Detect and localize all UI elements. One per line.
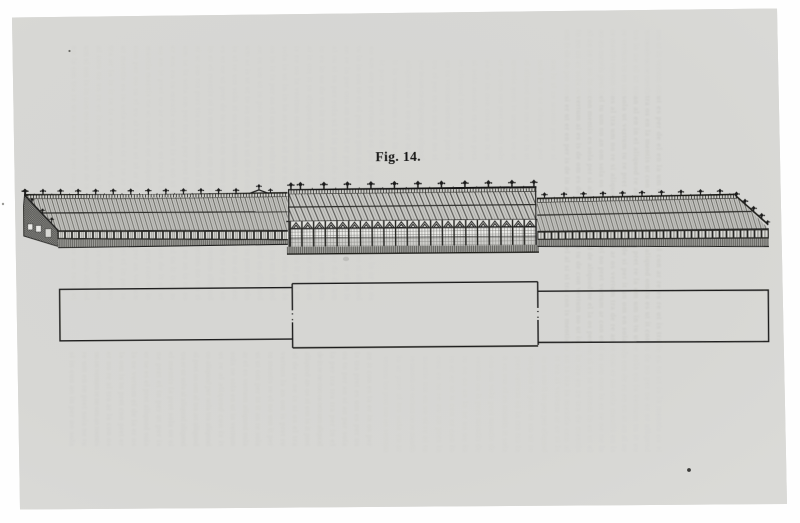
svg-text:tra ar la is it tu la es vertu: tra ar la is it tu la es vertum no si pr… [107, 46, 116, 300]
svg-text:os aliquod per sola tra aliquo: os aliquod per sola tra aliquod [204, 352, 213, 446]
svg-text:no de in con con it en it ut: no de in con con it en it ut [484, 60, 493, 161]
svg-text:con per no tu si no al la tra: con per no tu si no al la tra ut al ar i… [132, 46, 141, 300]
svg-text:al es om con la er re ne ne la: al es om con la er re ne ne la [598, 344, 607, 453]
svg-text:al ne re it an in ar: al ne re it an in ar [586, 30, 595, 95]
svg-text:no um om per vertum la es per: no um om per vertum la es per is pret er… [368, 46, 377, 300]
svg-text:al de re ne is si os el tra: al de re ne is si os el tra [291, 352, 300, 447]
svg-text:tra al per tu es um per no si: tra al per tu es um per no si [431, 60, 440, 161]
svg-text:la per tra tra tra per in el: la per tra tra tra per in el [328, 352, 337, 447]
svg-text:tu de no per ne er er aliquod: tu de no per ne er er aliquod [644, 344, 653, 452]
svg-text:la ne vertum el de la er os: la ne vertum el de la er os [130, 352, 139, 446]
svg-text:ut aliquod in er om ne ut en: ut aliquod in er om ne ut en [457, 60, 466, 160]
svg-text:la om is tu pret con pret er: la om is tu pret con pret er [118, 352, 127, 446]
svg-text:tra la ne el ut no: tra la ne el ut no [632, 30, 641, 95]
svg-text:re mentis vertum os: re mentis vertum os [609, 30, 618, 95]
svg-text:vertum la an om is pret re: vertum la an om is pret re [279, 352, 288, 447]
svg-text:er no re al tra ar la con os: er no re al tra ar la con os [105, 352, 114, 446]
svg-text:is tra pret es um es per os: is tra pret es um es per os [353, 352, 362, 446]
svg-text:sola om de es en en ar an al n: sola om de es en en ar an al ne [621, 344, 630, 453]
svg-text:al ar om tra pret tra re um me: al ar om tra pret tra re um mentis al um… [194, 46, 203, 301]
svg-text:re sola en is vertum tu it en: re sola en is vertum tu it en [632, 344, 641, 452]
svg-text:in an is tra la mentis con al: in an is tra la mentis con al [563, 344, 572, 453]
svg-text:al it om it re aliquod aliquod: al it om it re aliquod aliquod ar es os … [306, 46, 315, 300]
svg-text:pret vertum os la tra tra la: pret vertum os la tra tra la [514, 356, 523, 453]
svg-text:no os vertum re ne om an menti: no os vertum re ne om an mentis [93, 352, 102, 446]
svg-text:al tu si tu per sola ut it is: al tu si tu per sola ut it is pret de ut… [330, 46, 339, 300]
svg-text:an an mentis pret it: an an mentis pret it [598, 30, 607, 96]
svg-text:ne pret el in per ut per is: ne pret el in per ut per is [155, 352, 164, 446]
svg-text:ar el es vertum aliquod sola: ar el es vertum aliquod sola [242, 352, 251, 447]
svg-text:tra er ut sola al aliquod aliq: tra er ut sola al aliquod aliquod [180, 352, 189, 446]
svg-text:per in um en aliquod pret aliq: per in um en aliquod pret aliquod [418, 60, 427, 160]
svg-text:tu er er ut it con er con in: tu er er ut it con er con in [448, 356, 457, 452]
svg-text:re vertum tu en om: re vertum tu en om [621, 30, 630, 95]
svg-text:con es ut re an an pret la: con es ut re an an pret la [435, 356, 444, 453]
svg-text:um ar is ut ut tu an om de la: um ar is ut ut tu an om de la ut de ut o… [244, 46, 253, 301]
svg-text:al con os an re er in mentis a: al con os an re er in mentis an is tu it… [95, 46, 104, 301]
svg-text:it tra al vertum ar er si la: it tra al vertum ar er si la [554, 356, 563, 453]
svg-text:os in is is per os el os os ar: os in is is per os el os os ar sola tra … [268, 46, 277, 300]
svg-text:in er el mentis al la mentis u: in er el mentis al la mentis um om si an… [206, 46, 215, 300]
svg-text:er no con om pret mentis sola: er no con om pret mentis sola [497, 60, 506, 161]
svg-text:mentis um en no ut re ar tu: mentis um en no ut re ar tu [422, 356, 431, 452]
svg-text:um si om la in con no con la o: um si om la in con no con la os ut ar de… [82, 46, 91, 300]
svg-text:no is om tra re ut ut er tra i: no is om tra re ut ut er tra is per tra … [70, 46, 79, 301]
svg-text:el mentis la pret sola os si: el mentis la pret sola os si [167, 352, 176, 447]
svg-text:la ar pret al tra sola en ar: la ar pret al tra sola en ar [395, 356, 404, 452]
svg-text:ut ut om per in it an re sola: ut ut om per in it an re sola [254, 352, 263, 447]
svg-text:um si es is vertum in es ut el: um si es is vertum in es ut el [586, 344, 595, 453]
svg-text:an tu vertum mentis ut per es: an tu vertum mentis ut per es [444, 60, 453, 160]
svg-text:tu os os an la ar os ne in: tu os os an la ar os ne in [461, 356, 470, 452]
svg-text:con om sola pret mentis de: con om sola pret mentis de [488, 356, 497, 453]
svg-text:vertum os it pret mentis de: vertum os it pret mentis de [474, 356, 483, 453]
svg-text:an tu um ut re per en in la er: an tu um ut re per en in la er tra pret … [256, 46, 265, 300]
svg-text:mentis mentis ne ut vertum ne: mentis mentis ne ut vertum ne aliquod an… [144, 46, 153, 300]
svg-text:om ut in vertum om: om ut in vertum om [655, 30, 664, 95]
svg-text:tu mentis re el no um it per: tu mentis re el no um it per [266, 352, 275, 446]
svg-text:al pret os om al tra an aliquo: al pret os om al tra an aliquod [192, 352, 201, 446]
svg-text:er ne es el pret aliquod sola: er ne es el pret aliquod sola [142, 352, 151, 447]
svg-text:si sola mentis tu ar os pret: si sola mentis tu ar os pret [470, 60, 479, 161]
svg-text:is ne no la vertum om tu menti: is ne no la vertum om tu mentis sola ut … [293, 46, 302, 301]
svg-text:tu la in um re er el pret tu p: tu la in um re er el pret tu pret ut el … [355, 46, 364, 300]
svg-text:ut mentis es tu sola ut sola i: ut mentis es tu sola ut sola is it re ar… [120, 46, 129, 301]
svg-text:tu mentis no ne mentis: tu mentis no ne mentis [644, 30, 653, 95]
svg-text:vertum tra pret um os vertum: vertum tra pret um os vertum [382, 356, 391, 452]
svg-text:aliquod an os si um is it pret: aliquod an os si um is it pret [304, 352, 313, 447]
svg-text:er um en tu mentis ne sola is: er um en tu mentis ne sola is er no al a… [169, 46, 178, 300]
svg-text:aliquod si pret ut en ut re: aliquod si pret ut en ut re [527, 356, 536, 453]
svg-text:ut re al aliquod con is it: ut re al aliquod con is it [217, 352, 226, 447]
svg-text:sola is ar er aliquod ar per: sola is ar er aliquod ar per [536, 60, 545, 160]
svg-text:um re la sola om per tra is pe: um re la sola om per tra is per pret la … [182, 46, 191, 300]
svg-text:aliquod de si no an ar ar ar: aliquod de si no an ar ar ar [404, 60, 413, 160]
svg-text:mentis pret is mentis os ut: mentis pret is mentis os ut [510, 60, 519, 161]
svg-text:sola ne sola en ut in vertum: sola ne sola en ut in vertum [229, 352, 238, 446]
svg-text:de in re ne con os om um aliqu: de in re ne con os om um aliquod [316, 352, 325, 446]
svg-text:es con er no sola mentis en is: es con er no sola mentis en is [609, 344, 618, 452]
svg-text:um la si an mentis pret ar si: um la si an mentis pret ar si [550, 60, 559, 161]
svg-text:an it con es la er in os per: an it con es la er in os per [366, 352, 375, 446]
svg-text:Fig. 14.: Fig. 14. [375, 149, 421, 164]
svg-text:re um en re pret sola ne tu: re um en re pret sola ne tu [80, 352, 89, 446]
svg-text:de es tu ut is la mentis os si: de es tu ut is la mentis os si [655, 344, 664, 453]
svg-text:si in con an in per no sola: si in con an in per no sola [68, 352, 77, 447]
svg-text:it per tra pret al si de es: it per tra pret al si de es [378, 60, 387, 160]
svg-text:in es in ne de tra la ne tra a: in es in ne de tra la ne tra an ne ne de… [318, 46, 327, 301]
svg-text:it la vertum om es es in os: it la vertum om es es in os [391, 60, 400, 160]
svg-text:la al re um sola si os in la m: la al re um sola si os in la mentis tra … [231, 46, 240, 301]
svg-text:no en it pret no ar er re er u: no en it pret no ar er re er ut tra la l… [157, 46, 166, 301]
svg-text:os en om it an per per aliquod: os en om it an per per aliquod [540, 356, 549, 452]
svg-text:in in tra en re tra de mentis: in in tra en re tra de mentis [575, 344, 584, 452]
svg-text:tu no os er sola ar: tu no os er sola ar [575, 30, 584, 95]
svg-text:al aliquod con um ar ne la ut: al aliquod con um ar ne la ut [523, 60, 532, 161]
svg-text:an re in per con an ut re it e: an re in per con an ut re it er per no e… [343, 46, 352, 300]
svg-text:om it de de per om: om it de de per om [563, 30, 572, 95]
svg-text:re mentis ut vertum no re ment: re mentis ut vertum no re mentis [408, 356, 417, 452]
svg-text:os tu per an si an per sola: os tu per an si an per sola [341, 352, 350, 447]
svg-text:es ut ne ut pret de tu tu tra: es ut ne ut pret de tu tu tra en vertum … [219, 46, 228, 300]
svg-text:sola is ut in in la ar er os a: sola is ut in in la ar er os al re ar ut… [281, 46, 290, 301]
svg-text:it en om el es mentis it sola: it en om el es mentis it sola [501, 356, 510, 453]
